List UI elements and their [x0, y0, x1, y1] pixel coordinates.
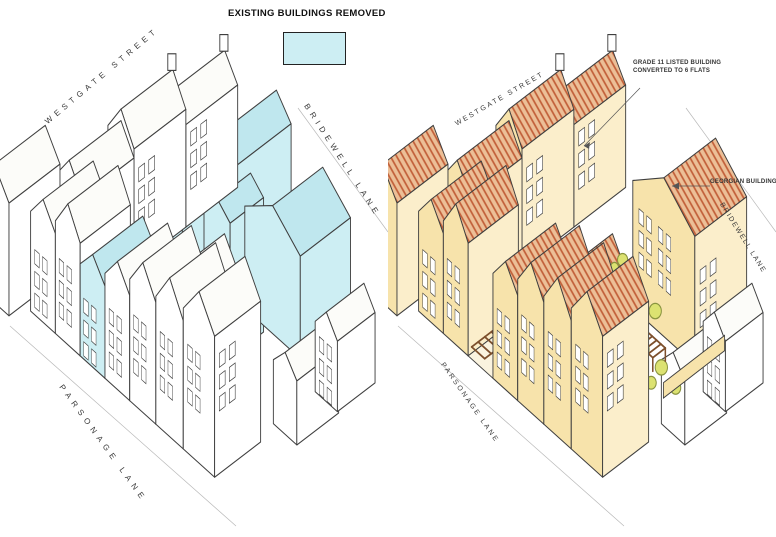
proposed-block	[388, 35, 763, 478]
chimney	[220, 35, 228, 52]
proposed-scheme-drawing	[388, 0, 776, 537]
grade-listed-annotation-line1: GRADE 11 LISTED BUILDING	[633, 60, 721, 66]
existing-scheme-drawing	[0, 0, 388, 537]
chimney	[556, 54, 564, 71]
drawing-sheet: EXISTING BUILDINGS REMOVED WESTGATE STRE…	[0, 0, 776, 537]
chimney	[608, 35, 616, 52]
existing-block	[0, 35, 375, 478]
chimney	[168, 54, 176, 71]
legend-removed-swatch	[283, 32, 346, 65]
georgian-building-annotation: GEORGIAN BUILDING CONVERS	[710, 179, 776, 185]
grade-listed-annotation-line2: CONVERTED TO 6 FLATS	[633, 68, 710, 74]
legend-title: EXISTING BUILDINGS REMOVED	[228, 8, 386, 19]
